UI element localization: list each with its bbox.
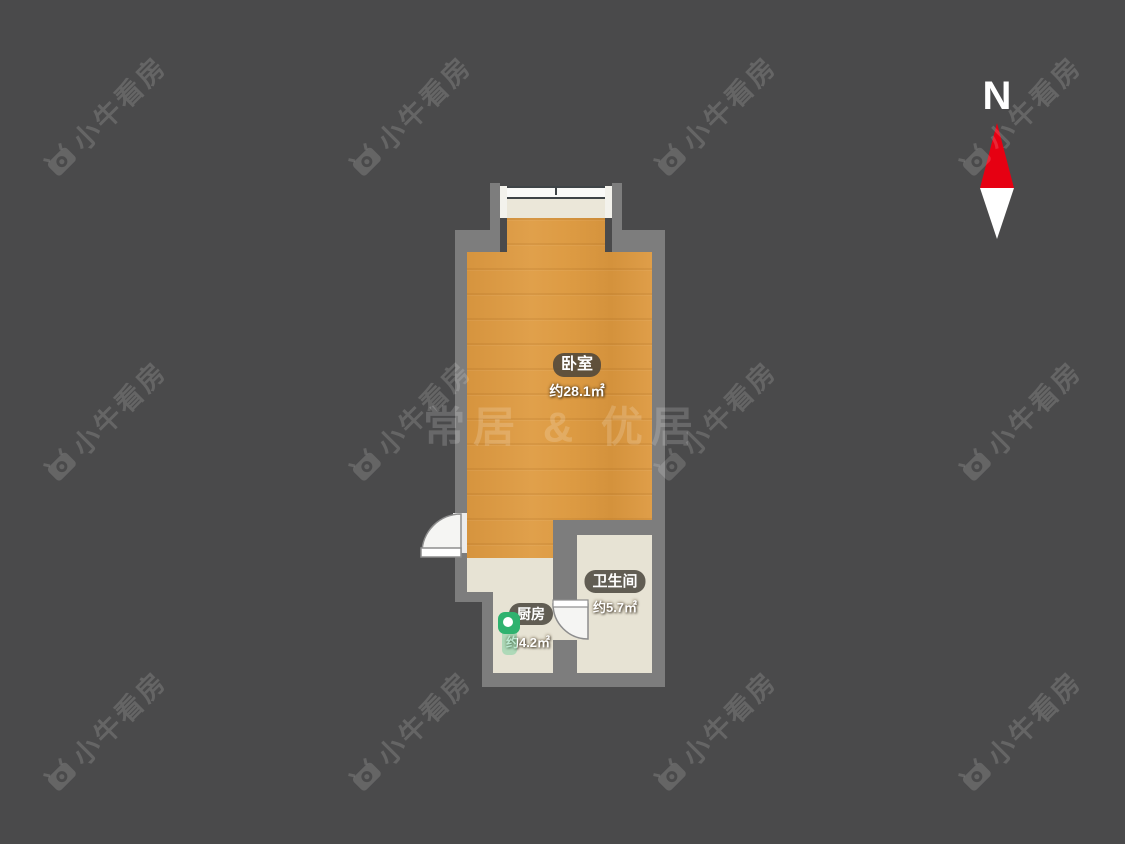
brand-watermark-text: 小牛看房: [977, 661, 1089, 773]
wall-segment: [612, 183, 622, 252]
wall-segment: [553, 520, 652, 535]
compass-needle-icon: [975, 115, 1020, 245]
room-area-bathroom: 约5.7㎡: [593, 597, 637, 616]
brand-watermark: 小牛看房: [341, 46, 480, 185]
niu-camera-icon: [40, 755, 80, 795]
brand-watermark-text: 小牛看房: [367, 661, 479, 773]
wall-segment: [553, 640, 577, 673]
brand-watermark: 小牛看房: [646, 661, 785, 800]
entry-door-arc: [415, 505, 470, 565]
brand-watermark: 小牛看房: [36, 661, 175, 800]
brand-watermark: 小牛看房: [951, 46, 1090, 185]
brand-watermark-text: 小牛看房: [62, 661, 174, 773]
wall-segment: [652, 252, 665, 520]
brand-watermark: 小牛看房: [36, 46, 175, 185]
wall-segment: [490, 183, 500, 252]
niu-camera-icon: [955, 445, 995, 485]
window-tick: [555, 187, 557, 195]
location-pin-dot: [503, 617, 513, 627]
bathroom-door-arc: [548, 596, 594, 644]
niu-camera-icon: [650, 140, 690, 180]
brand-watermark-text: 小牛看房: [672, 46, 784, 158]
wall-segment: [652, 520, 665, 687]
brand-watermark-text: 小牛看房: [672, 661, 784, 773]
center-watermark: 常居 & 优居: [423, 394, 701, 455]
wall-segment: [455, 592, 493, 602]
brand-watermark-text: 小牛看房: [367, 46, 479, 158]
room-label-bathroom: 卫生间: [584, 570, 645, 593]
niu-camera-icon: [40, 445, 80, 485]
wall-segment: [553, 535, 577, 602]
screen: 卧室 约28.1㎡ 卫生间 约5.7㎡ 厨房 约4.2㎡ N 常居 & 优居 小…: [0, 0, 1125, 844]
location-pin-icon: [498, 612, 520, 634]
niu-camera-icon: [345, 755, 385, 795]
niu-camera-icon: [650, 755, 690, 795]
niu-camera-icon: [345, 140, 385, 180]
wall-segment: [622, 230, 665, 252]
niu-camera-icon: [955, 755, 995, 795]
niu-camera-icon: [40, 140, 80, 180]
brand-watermark-text: 小牛看房: [62, 46, 174, 158]
brand-watermark: 小牛看房: [646, 46, 785, 185]
compass-north-label: N: [983, 74, 1012, 119]
brand-watermark-text: 小牛看房: [977, 351, 1089, 463]
room-label-bedroom: 卧室: [553, 353, 601, 377]
wall-segment: [455, 252, 467, 513]
window-cap: [605, 186, 612, 218]
brand-watermark: 小牛看房: [36, 351, 175, 490]
brand-watermark: 小牛看房: [951, 661, 1090, 800]
bay-window-sill: [507, 199, 605, 218]
brand-watermark-text: 小牛看房: [62, 351, 174, 463]
niu-camera-icon: [345, 445, 385, 485]
wall-segment: [482, 673, 665, 687]
brand-watermark: 小牛看房: [951, 351, 1090, 490]
window-cap: [500, 186, 507, 218]
wall-segment: [455, 230, 490, 252]
brand-watermark: 小牛看房: [341, 661, 480, 800]
